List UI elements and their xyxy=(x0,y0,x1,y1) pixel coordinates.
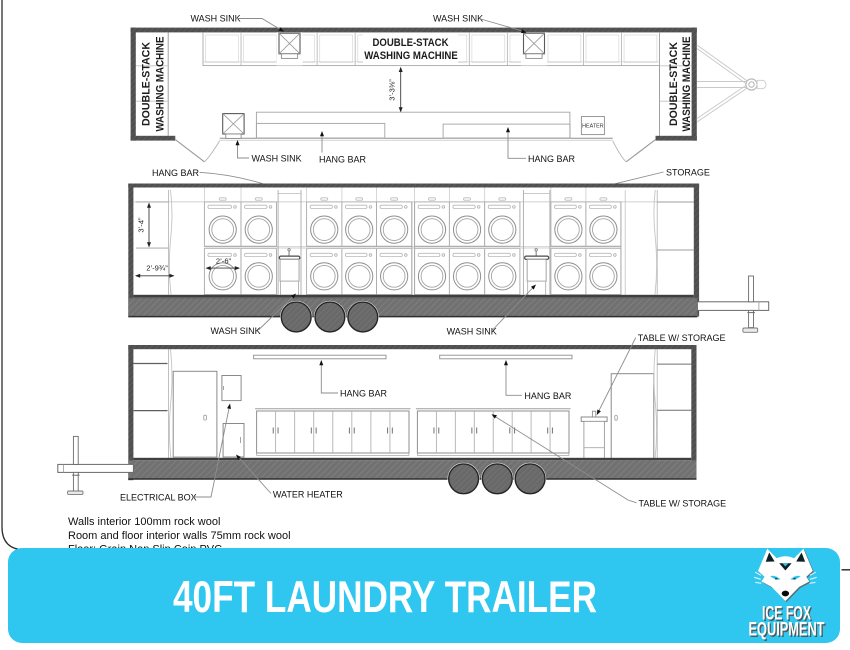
svg-text:HANG BAR: HANG BAR xyxy=(524,391,572,401)
svg-text:WASH SINK: WASH SINK xyxy=(252,154,302,164)
svg-text:HANG BAR: HANG BAR xyxy=(340,389,388,399)
svg-text:STORAGE: STORAGE xyxy=(666,168,710,178)
svg-text:WASHING MACHINE: WASHING MACHINE xyxy=(155,37,167,132)
svg-text:ELECTRICAL BOX: ELECTRICAL BOX xyxy=(120,493,197,503)
svg-text:HANG BAR: HANG BAR xyxy=(528,154,576,164)
svg-text:DOUBLE-STACK: DOUBLE-STACK xyxy=(668,42,680,126)
svg-text:WASH SINK: WASH SINK xyxy=(447,327,497,337)
svg-text:WASH SINK: WASH SINK xyxy=(211,326,261,336)
svg-text:DOUBLE-STACK: DOUBLE-STACK xyxy=(373,37,449,49)
svg-text:2’-6”: 2’-6” xyxy=(216,256,232,265)
svg-text:3’-3⅜”: 3’-3⅜” xyxy=(388,79,397,101)
svg-text:HEATER: HEATER xyxy=(582,124,604,130)
svg-text:WASHING MACHINE: WASHING MACHINE xyxy=(681,37,693,132)
svg-text:WASH SINK: WASH SINK xyxy=(191,14,241,24)
svg-text:EQUIPMENT: EQUIPMENT xyxy=(749,619,825,641)
svg-text:WASHING MACHINE: WASHING MACHINE xyxy=(364,50,458,62)
svg-text:WASH SINK: WASH SINK xyxy=(433,14,483,24)
svg-text:HANG BAR: HANG BAR xyxy=(319,155,367,165)
svg-text:DOUBLE-STACK: DOUBLE-STACK xyxy=(141,42,153,126)
svg-text:Room and floor interior walls: Room and floor interior walls 75mm rock … xyxy=(68,530,291,542)
svg-text:Walls interior 100mm rock wool: Walls interior 100mm rock wool xyxy=(68,516,220,528)
svg-text:40FT LAUNDRY TRAILER: 40FT LAUNDRY TRAILER xyxy=(173,573,597,622)
svg-text:3’-4”: 3’-4” xyxy=(137,217,146,233)
svg-text:TABLE W/ STORAGE: TABLE W/ STORAGE xyxy=(639,499,727,509)
svg-text:HANG BAR: HANG BAR xyxy=(152,168,200,178)
svg-text:TABLE W/ STORAGE: TABLE W/ STORAGE xyxy=(638,333,726,343)
svg-text:2’-9¾”: 2’-9¾” xyxy=(146,264,168,273)
svg-text:WATER HEATER: WATER HEATER xyxy=(273,490,343,500)
